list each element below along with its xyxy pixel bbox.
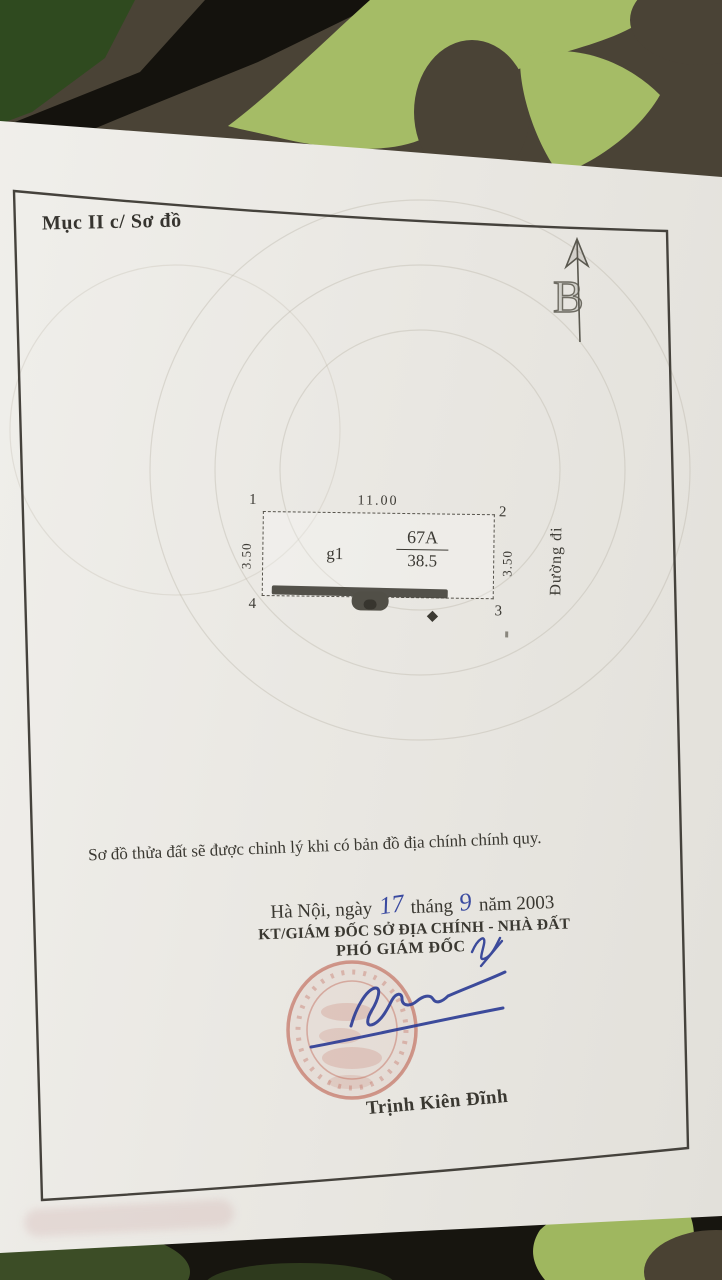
handwritten-month: 9 [456,888,476,918]
ink-blot-core [364,599,377,609]
paper-speck [505,631,508,637]
issuance-block: Hà Nội, ngày 17 tháng 9 năm 2003 KT/GIÁM… [257,887,569,964]
parcel-id: 67A [396,527,448,550]
corner-label-3: 3 [494,603,502,620]
section-heading: Mục II c/ Sơ đồ [42,210,182,236]
right-dimension-label: 3.50 [499,550,515,577]
handwritten-day: 17 [375,890,408,922]
month-word: tháng [410,896,453,918]
corner-label-1: 1 [249,492,257,509]
corner-label-2: 2 [499,504,507,521]
left-dimension-label: 3.50 [238,542,254,569]
zone-label: g1 [326,544,343,564]
top-dimension-label: 11.00 [338,493,418,510]
date-prefix: Hà Nội, ngày [270,898,373,923]
parcel-area: 38.5 [396,550,448,571]
corner-label-4: 4 [248,596,256,613]
north-letter-label: B [553,270,584,323]
parcel-id-area-fraction: 67A 38.5 [396,527,449,571]
plot-diagram: 1 2 3 4 11.00 3.50 3.50 g1 67A 38.5 Đườn… [239,486,571,666]
diamond-mark [427,611,438,622]
road-label: Đường đi [547,526,566,595]
year-word: năm [479,894,512,916]
year-value: 2003 [516,892,555,914]
